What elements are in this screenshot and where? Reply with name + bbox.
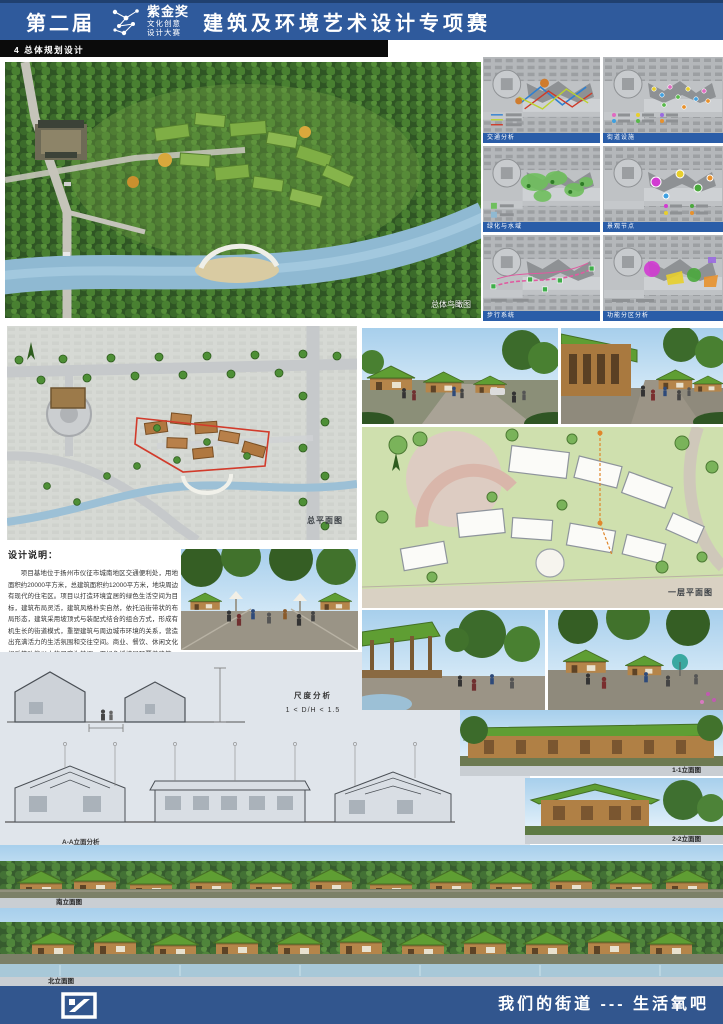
site-plan-caption: 总平面图 [307, 515, 343, 526]
analysis-caption: 功能分区分析 [603, 311, 723, 321]
south-elevation-caption-band: 南立面图 [0, 898, 723, 908]
analysis-panel-facilities: 街道设施 [603, 57, 723, 143]
north-elevation-caption-band: 北立面图 [0, 977, 723, 986]
scale-analysis-drawing [5, 658, 250, 732]
rendering-street-3 [181, 549, 358, 650]
elevation-2-2-photo [525, 778, 723, 835]
analysis-panel-greenery: 绿化与水域 [483, 146, 600, 232]
rendering-street-2 [561, 328, 723, 424]
footer-slogan: 我们的街道 --- 生活氧吧 [498, 986, 709, 1024]
design-notes-title: 设计说明： [8, 548, 178, 561]
rendering-street-1 [362, 328, 558, 424]
section-strip: 4 总体规划设计 [0, 40, 388, 57]
analysis-caption: 绿化与水域 [483, 222, 600, 232]
section-tab-label: 4 总体规划设计 [14, 42, 84, 59]
elevation-1-1-caption-band: 1-1立面图 [460, 766, 723, 776]
edition-label: 第二届 [26, 7, 95, 36]
south-elevation-panorama [0, 845, 723, 898]
rendering-cabins [548, 610, 723, 710]
competition-poster: 第二届 紫金奖 文化创意 设计大赛 建筑及环境艺术设计专项赛 4 总体规划设计 [0, 0, 723, 1024]
analysis-caption: 景观节点 [603, 222, 723, 232]
north-elevation-caption: 北立面图 [48, 978, 74, 985]
floor-plan-caption: 一层平面图 [668, 587, 713, 598]
analysis-caption: 步行系统 [483, 311, 600, 321]
aerial-rendering: 总体鸟瞰图 [5, 62, 481, 318]
north-elevation-panorama [0, 908, 723, 977]
elevation-1-1-caption: 1-1立面图 [672, 767, 701, 774]
analysis-panel-pedestrian: 步行系统 [483, 235, 600, 321]
elevation-2-2-caption: 2-2立面图 [672, 836, 701, 843]
analysis-panel-nodes: 景观节点 [603, 146, 723, 232]
analysis-grid: 交通分析 街道设施 [483, 57, 723, 321]
scale-analysis-formula: 1 < D/H < 1.5 [258, 707, 368, 714]
south-elevation-caption: 南立面图 [56, 899, 82, 906]
analysis-caption: 交通分析 [483, 133, 600, 143]
analysis-caption: 街道设施 [603, 133, 723, 143]
rendering-pavilion [362, 610, 545, 710]
elevation-1-1-photo [460, 710, 723, 766]
header-bar: 第二届 紫金奖 文化创意 设计大赛 建筑及环境艺术设计专项赛 [0, 0, 723, 40]
award-wordmark: 紫金奖 文化创意 设计大赛 [147, 5, 189, 37]
aerial-caption: 总体鸟瞰图 [431, 299, 471, 310]
aa-elevation-drawing [5, 738, 455, 834]
competition-title: 建筑及环境艺术设计专项赛 [203, 7, 491, 36]
scale-analysis-title: 尺度分析 [258, 690, 368, 701]
site-plan: 总平面图 [7, 326, 357, 540]
elevation-2-2-caption-band: 2-2立面图 [525, 835, 723, 844]
analysis-panel-traffic: 交通分析 [483, 57, 600, 143]
footer-logo-icon [56, 990, 102, 1021]
zijin-award-logo-icon [109, 6, 143, 38]
footer-bar: 我们的街道 --- 生活氧吧 [0, 986, 723, 1024]
analysis-panel-function-zones: 功能分区分析 [603, 235, 723, 321]
scale-analysis-labels: 尺度分析 1 < D/H < 1.5 [258, 690, 368, 714]
award-sub2: 设计大赛 [147, 29, 189, 38]
floor-plan: 一层平面图 [362, 427, 723, 608]
